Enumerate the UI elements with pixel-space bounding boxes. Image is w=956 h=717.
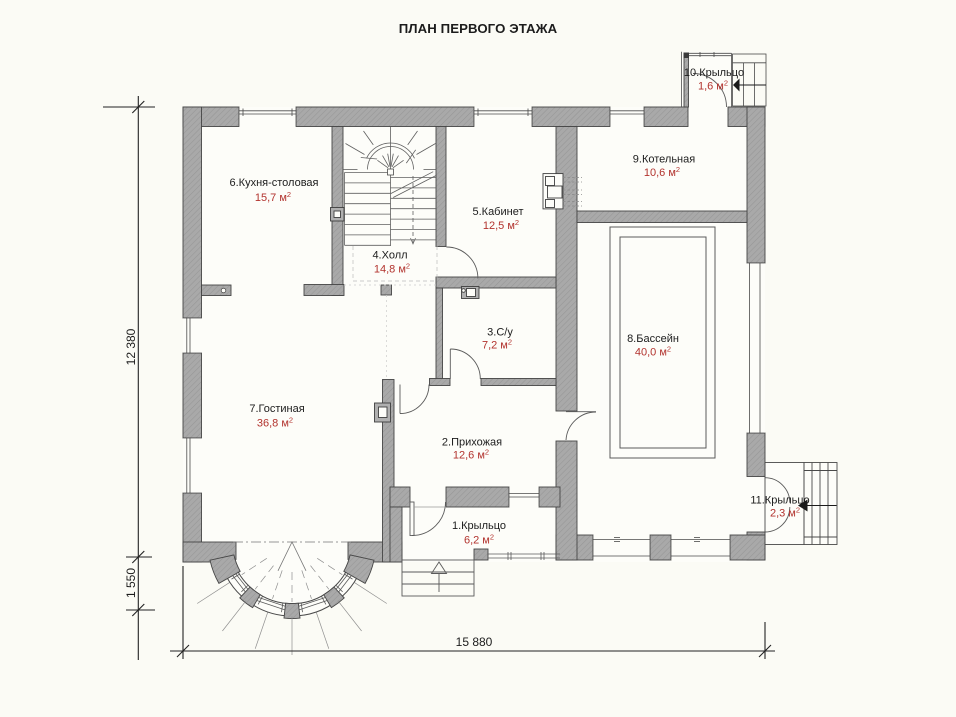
svg-text:14,8 м2: 14,8 м2	[374, 262, 410, 276]
svg-text:6,2 м2: 6,2 м2	[464, 533, 494, 547]
svg-text:40,0 м2: 40,0 м2	[635, 345, 671, 359]
svg-text:6.Кухня-столовая: 6.Кухня-столовая	[229, 177, 318, 189]
svg-text:10.Крыльцо: 10.Крыльцо	[684, 67, 744, 79]
svg-text:7.Гостиная: 7.Гостиная	[249, 403, 304, 415]
svg-text:10,6 м2: 10,6 м2	[644, 165, 680, 179]
svg-text:12,6 м2: 12,6 м2	[453, 448, 489, 462]
svg-text:2,3 м2: 2,3 м2	[770, 506, 800, 520]
svg-text:12,5 м2: 12,5 м2	[483, 218, 519, 232]
svg-text:ПЛАН ПЕРВОГО ЭТАЖА: ПЛАН ПЕРВОГО ЭТАЖА	[399, 21, 558, 36]
svg-text:12 380: 12 380	[124, 328, 138, 365]
svg-text:1,6 м2: 1,6 м2	[698, 79, 728, 93]
svg-text:1.Крыльцо: 1.Крыльцо	[452, 520, 506, 532]
svg-text:36,8 м2: 36,8 м2	[257, 416, 293, 430]
svg-text:4.Холл: 4.Холл	[372, 250, 407, 262]
svg-text:1 550: 1 550	[124, 568, 138, 598]
svg-text:7,2 м2: 7,2 м2	[482, 338, 512, 352]
svg-text:8.Бассейн: 8.Бассейн	[627, 333, 679, 345]
svg-text:2.Прихожая: 2.Прихожая	[442, 437, 502, 449]
svg-text:15 880: 15 880	[456, 635, 493, 649]
svg-text:5.Кабинет: 5.Кабинет	[472, 206, 523, 218]
svg-text:11.Крыльцо: 11.Крыльцо	[750, 495, 809, 507]
svg-text:15,7 м2: 15,7 м2	[255, 190, 291, 204]
svg-text:9.Котельная: 9.Котельная	[633, 154, 695, 166]
